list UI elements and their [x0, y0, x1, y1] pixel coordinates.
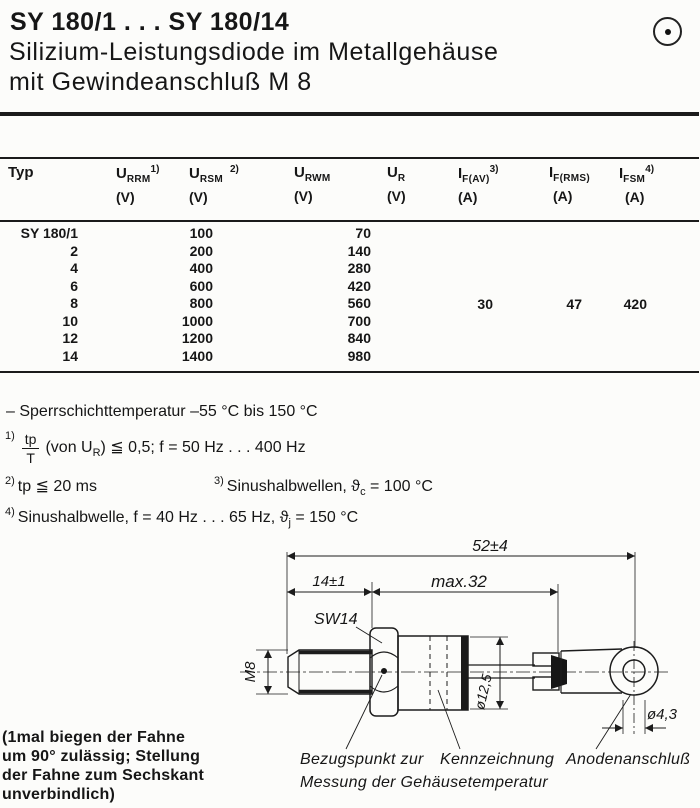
value-ifrms-shared: 47	[540, 296, 582, 312]
case-temp-reference-dot	[381, 668, 387, 674]
ref-point-leader	[346, 675, 382, 749]
footnote-1-marker: 1)	[5, 430, 15, 442]
footnote-4: 4)Sinushalbwelle, f = 40 Hz . . . 65 Hz,…	[5, 506, 358, 529]
table-row-typ: 10	[0, 313, 78, 329]
datasheet-page: SY 180/1 . . . SY 180/14 Silizium-Leistu…	[0, 0, 700, 808]
hole-diameter-label: ø4,3	[647, 706, 678, 723]
table-row-typ: 14	[0, 348, 78, 364]
value-urwm: 70	[297, 225, 371, 241]
ref-point-label-line2: Messung der Gehäusetemperatur	[300, 774, 548, 792]
column-header-typ: Typ	[8, 164, 34, 181]
header-rule	[0, 112, 699, 116]
footnote-1-text: (von UR) ≦ 0,5; f = 50 Hz . . . 400 Hz	[45, 437, 305, 459]
table-row-typ: 6	[0, 278, 78, 294]
bend-note-line1: (1mal biegen der Fahne	[2, 728, 185, 747]
ref-point-label-line1: Bezugspunkt zur	[300, 751, 424, 769]
bend-note-line3: der Fahne zum Sechskant	[2, 766, 204, 785]
dim-stud-label: 14±1	[312, 573, 345, 590]
subtitle-line-1: Silizium-Leistungsdiode im Metallgehäuse	[9, 38, 499, 67]
value-urwm: 560	[297, 295, 371, 311]
value-urrm-ursm: 1400	[138, 348, 213, 364]
diode-body	[398, 636, 468, 710]
value-urwm: 980	[297, 348, 371, 364]
value-urwm: 140	[297, 243, 371, 259]
table-row-typ: 4	[0, 260, 78, 276]
flag-terminal	[561, 649, 622, 651]
value-urwm: 420	[297, 278, 371, 294]
value-urrm-ursm: 400	[138, 260, 213, 276]
value-urwm: 700	[297, 313, 371, 329]
sw14-leader	[356, 627, 382, 643]
value-urrm-ursm: 1200	[138, 330, 213, 346]
table-bottom-rule	[0, 371, 699, 373]
wrench-size-label: SW14	[314, 611, 358, 628]
thread-size-label: M8	[242, 661, 259, 682]
brand-circle-dot-icon	[653, 17, 682, 46]
table-top-rule	[0, 157, 699, 159]
value-ifav-shared: 30	[450, 296, 493, 312]
dim-body-label: max.32	[431, 572, 487, 591]
column-header-urwm: URWM (V)	[294, 164, 331, 204]
dim-total-label: 52±4	[472, 538, 508, 555]
subtitle-line-2: mit Gewindeanschluß M 8	[9, 68, 312, 97]
value-urrm-ursm: 600	[138, 278, 213, 294]
logo-dot	[665, 29, 671, 35]
anode-leader	[596, 694, 631, 749]
column-header-ifrms: IF(RMS) (A)	[549, 164, 590, 204]
column-header-ur: UR (V)	[387, 164, 406, 204]
column-header-ursm: URSM2) (V)	[189, 164, 239, 205]
table-row-typ: 12	[0, 330, 78, 346]
column-header-urrm: URRM1) (V)	[116, 164, 159, 205]
value-urrm-ursm: 800	[138, 295, 213, 311]
value-urrm-ursm: 1000	[138, 313, 213, 329]
junction-temperature-note: – Sperrschichttemperatur –55 °C bis 150 …	[6, 403, 318, 421]
value-urwm: 840	[297, 330, 371, 346]
anode-connection-label: Anodenanschluß	[566, 751, 690, 769]
value-urrm-ursm: 200	[138, 243, 213, 259]
tp-over-t-fraction: tpT	[22, 431, 40, 466]
footnote-2: 2)tp ≦ 20 ms	[5, 475, 97, 496]
footnote-1: 1) tpT (von UR) ≦ 0,5; f = 50 Hz . . . 4…	[5, 428, 306, 468]
value-urrm-ursm: 100	[138, 225, 213, 241]
outline-drawing: 52±4 14±1 max.32 SW14 M8 ø12,5 ø4,3	[230, 535, 700, 755]
value-ifsm-shared: 420	[600, 296, 647, 312]
column-header-ifav: IF(AV)3) (A)	[458, 164, 499, 205]
table-row-typ: SY 180/1	[0, 225, 78, 241]
marking-leader	[438, 690, 460, 749]
bend-note-line4: unverbindlich)	[2, 785, 115, 804]
column-header-ifsm: IFSM4) (A)	[619, 164, 654, 205]
marking-label: Kennzeichnung	[440, 751, 554, 769]
table-row-typ: 2	[0, 243, 78, 259]
value-urwm: 280	[297, 260, 371, 276]
body-end-band	[461, 636, 468, 710]
footnote-3: 3)Sinushalbwellen, ϑc = 100 °C	[214, 475, 433, 498]
table-header-rule	[0, 220, 699, 222]
table-row-typ: 8	[0, 295, 78, 311]
page-title: SY 180/1 . . . SY 180/14	[10, 8, 289, 37]
bend-note-line2: um 90° zulässig; Stellung	[2, 747, 200, 766]
